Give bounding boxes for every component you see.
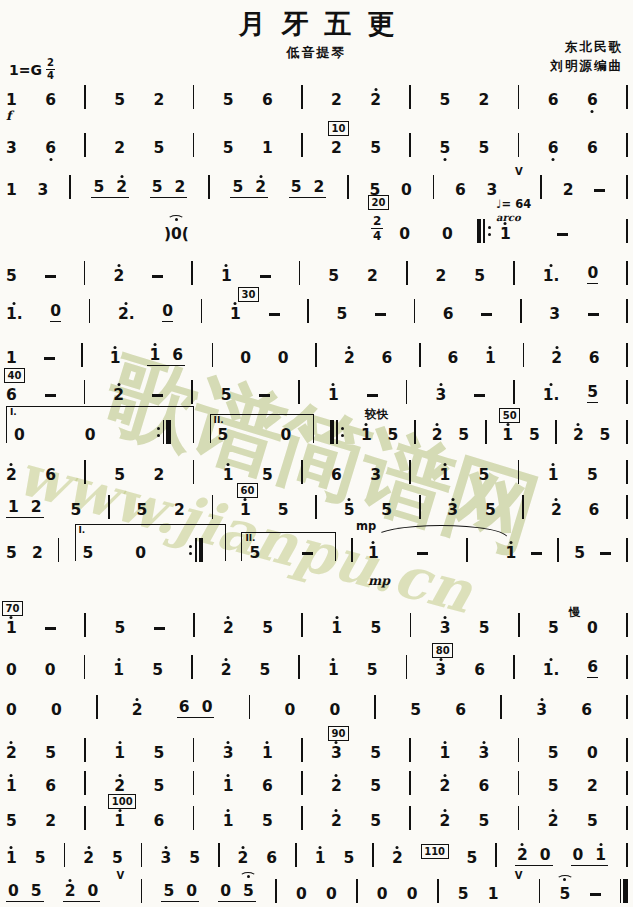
- note: 0: [329, 703, 340, 719]
- barline: [301, 460, 303, 484]
- note-glyph: 2.: [118, 307, 135, 323]
- barline: [141, 843, 143, 867]
- note-glyph: 1: [223, 814, 234, 830]
- note: 2: [114, 141, 125, 157]
- barline: [108, 495, 110, 519]
- bthin: [193, 738, 195, 762]
- note-glyph: 6: [179, 700, 190, 716]
- meter-numerator: 2: [46, 58, 55, 70]
- dash-note: [531, 552, 542, 555]
- note: 5: [249, 546, 260, 562]
- octave-dot-high-icon: [227, 463, 230, 466]
- note-glyph: 5: [458, 887, 469, 903]
- note-glyph: 1: [439, 468, 450, 484]
- barline: [477, 219, 492, 243]
- barline: [193, 460, 195, 484]
- note-glyph: 5: [115, 621, 126, 637]
- note: 2: [432, 428, 443, 444]
- note-glyph: 5: [249, 546, 260, 562]
- annotation-text: 慢: [569, 606, 581, 620]
- bthin: [193, 460, 195, 484]
- barline: [298, 655, 300, 679]
- barline: [414, 420, 416, 444]
- note: 1: [328, 388, 339, 404]
- octave-dot-high-icon: [550, 383, 553, 386]
- time-signature: 2420: [371, 215, 383, 242]
- note-glyph: 0: [240, 351, 251, 367]
- note-glyph: 5: [243, 884, 254, 900]
- note-glyph: 2: [6, 468, 17, 484]
- bthin: [193, 133, 195, 157]
- bthin: [626, 538, 628, 562]
- note: 6: [479, 779, 490, 795]
- octave-dot-high-icon: [443, 774, 446, 777]
- note-glyph: 1.: [543, 388, 560, 404]
- barline: [513, 261, 515, 285]
- note-glyph: 5: [328, 269, 339, 285]
- note-glyph: 2: [132, 703, 143, 719]
- note-glyph: 1: [6, 183, 17, 199]
- note: 0: [50, 304, 61, 323]
- note-glyph: 5: [388, 428, 399, 444]
- measure-number-box: 90: [328, 726, 349, 741]
- note: 6: [474, 663, 485, 679]
- note: 1.: [543, 663, 560, 679]
- barline: [307, 299, 309, 323]
- barline: [520, 299, 522, 323]
- note: 5: [370, 779, 381, 795]
- bdots: [488, 219, 491, 243]
- fermata-icon: [168, 215, 185, 225]
- note: 1: [6, 779, 17, 795]
- barline: [295, 843, 297, 867]
- barline: [301, 738, 303, 762]
- note-glyph: 5: [223, 93, 234, 109]
- note-glyph: 2: [551, 503, 562, 519]
- bthin: [347, 175, 349, 199]
- note: 0: [280, 428, 291, 444]
- bdot: [157, 427, 160, 430]
- note-glyph: 1: [368, 546, 379, 562]
- bthin: [518, 85, 520, 109]
- bthin: [356, 879, 358, 903]
- barline: [374, 695, 376, 719]
- bthin: [409, 738, 411, 762]
- note: 5: [93, 180, 104, 196]
- note-glyph: 2: [113, 269, 124, 285]
- note-glyph: 1: [110, 351, 121, 367]
- note: 5: [114, 93, 125, 109]
- barline: [191, 261, 193, 285]
- note-glyph: 6: [589, 351, 600, 367]
- note-glyph: 0: [51, 703, 62, 719]
- barline: [406, 380, 408, 404]
- barline: [301, 613, 303, 637]
- note: 2: [174, 503, 185, 519]
- music-line-2: 36255121055566: [6, 130, 628, 156]
- bthin: [626, 843, 628, 867]
- note: 1mpmp: [368, 546, 379, 562]
- note-glyph: 2: [6, 746, 17, 762]
- note: 1: [439, 468, 450, 484]
- dash-note: [152, 275, 163, 278]
- bthin: [249, 695, 251, 719]
- dash-note: [45, 627, 56, 630]
- note-glyph: 5: [223, 141, 234, 157]
- music-line-16: 25153139051350: [6, 735, 628, 761]
- note: 2: [331, 93, 342, 109]
- note-glyph: 6: [455, 703, 466, 719]
- note: 5: [291, 180, 302, 196]
- note-glyph: 2: [432, 428, 443, 444]
- meter-denominator: 4: [47, 70, 54, 81]
- note-glyph: 1: [488, 887, 499, 903]
- note: 5: [370, 814, 381, 830]
- barline: [409, 738, 411, 762]
- note: 1: [548, 468, 559, 484]
- bthin: [513, 655, 515, 679]
- credits: 东北民歌 刘明源编曲: [551, 38, 624, 76]
- note-glyph: 6: [548, 93, 559, 109]
- octave-dot-high-icon: [444, 616, 447, 619]
- note: 2: [436, 269, 447, 285]
- music-line-1: 1f65256225266: [6, 82, 628, 108]
- barline: [249, 695, 251, 719]
- note-glyph: 0: [162, 304, 173, 320]
- note: 5: [367, 663, 378, 679]
- music-line-6: 1.02.0130563: [6, 296, 628, 322]
- note-glyph: 2: [479, 93, 490, 109]
- volta-1-bracket: I.50: [75, 524, 227, 561]
- note-glyph: 2: [563, 183, 574, 199]
- barline: [347, 175, 349, 199]
- note-glyph: 1: [6, 351, 17, 367]
- octave-dot-high-icon: [227, 616, 230, 619]
- note-glyph: 3: [479, 746, 490, 762]
- bthin: [299, 261, 301, 285]
- note-glyph: 1: [315, 851, 326, 867]
- note: 5: [45, 746, 56, 762]
- note: )0(: [164, 227, 189, 243]
- bthin: [414, 299, 416, 323]
- note: 5: [344, 851, 355, 867]
- barline: [485, 420, 487, 444]
- volta-2-bracket: II.5: [241, 532, 336, 562]
- note: 3: [536, 703, 547, 719]
- octave-dot-high-icon: [555, 498, 558, 501]
- barline: [626, 460, 628, 484]
- bthin: [301, 460, 303, 484]
- barline: [626, 538, 628, 562]
- bthin: [406, 655, 408, 679]
- music-line-17: 162516252652: [6, 768, 628, 794]
- note: 2: [367, 269, 378, 285]
- note-glyph: 2: [331, 779, 342, 795]
- note: 0: [296, 887, 307, 903]
- note-glyph: 5: [221, 388, 232, 404]
- measure-number-box: 30: [238, 287, 259, 302]
- note: 6: [45, 779, 56, 795]
- note: 2: [6, 468, 17, 484]
- note-glyph: 5: [458, 428, 469, 444]
- octave-dot-low-icon: [552, 158, 555, 161]
- note: 2: [132, 703, 143, 719]
- note: 2: [548, 814, 559, 830]
- note-glyph: 2: [314, 180, 325, 196]
- note: 0: [51, 703, 62, 719]
- note-glyph: 3: [549, 307, 560, 323]
- measure-number-box: 70: [2, 601, 23, 616]
- barline: [351, 538, 353, 562]
- note-glyph: 5: [45, 746, 56, 762]
- barline: [156, 420, 171, 444]
- barline: [626, 420, 628, 444]
- barline: [69, 175, 71, 199]
- note-glyph: 6: [548, 141, 559, 157]
- note-glyph: 0: [329, 703, 340, 719]
- octave-dot-high-icon: [114, 346, 117, 349]
- bthick: [166, 420, 171, 444]
- barline: [330, 420, 345, 444]
- note-glyph: 0: [14, 428, 25, 444]
- bthin: [351, 538, 353, 562]
- octave-dot-high-icon: [439, 383, 442, 386]
- note-glyph: 5: [587, 385, 598, 401]
- note-glyph: 0: [8, 884, 19, 900]
- bthick: [623, 879, 628, 903]
- note: 1: [315, 851, 326, 867]
- note: 2: [175, 180, 186, 196]
- note-glyph: 3: [6, 141, 17, 157]
- note: 2: [392, 851, 403, 867]
- note: 2: [587, 779, 598, 795]
- note: 0: [8, 884, 19, 900]
- note: 2: [479, 93, 490, 109]
- barline: [84, 380, 86, 404]
- bthin: [301, 806, 303, 830]
- note: 0: [135, 546, 146, 562]
- note: 3: [486, 183, 497, 199]
- note: 0: [587, 746, 598, 762]
- note: 0: [399, 227, 410, 243]
- note-glyph: 6: [45, 779, 56, 795]
- bow-mark-icon: V: [515, 870, 523, 881]
- note-glyph: 0: [407, 887, 418, 903]
- note: 5: [262, 814, 273, 830]
- volta-label: I.: [79, 526, 86, 535]
- barline: [89, 299, 91, 323]
- note-glyph: 2: [548, 814, 559, 830]
- bthin: [620, 879, 622, 903]
- bthin: [495, 843, 497, 867]
- barline: [433, 175, 435, 199]
- note-glyph: 2: [45, 814, 56, 830]
- bthin: [96, 695, 98, 719]
- volta-label: II.: [214, 416, 224, 425]
- note-glyph: 3: [223, 746, 234, 762]
- octave-dot-high-icon: [164, 846, 167, 849]
- note-glyph: 6: [262, 779, 273, 795]
- bthin: [374, 695, 376, 719]
- music-line-19: 1525352615211052001: [6, 840, 628, 866]
- note-glyph: 1: [502, 428, 513, 444]
- note-glyph: 2: [174, 503, 185, 519]
- barline: [212, 495, 214, 519]
- bthin: [518, 806, 520, 830]
- barline: [208, 175, 210, 199]
- bthin: [626, 343, 628, 367]
- note: 5: [6, 814, 17, 830]
- octave-dot-high-icon: [153, 343, 156, 346]
- octave-dot-high-icon: [489, 346, 492, 349]
- barline: [96, 695, 98, 719]
- barline: [626, 261, 628, 285]
- bthin: [466, 538, 468, 562]
- note: 5: [112, 851, 123, 867]
- octave-dot-high-icon: [332, 658, 335, 661]
- barline: [299, 261, 301, 285]
- barline: [419, 343, 421, 367]
- octave-dot-high-icon: [335, 616, 338, 619]
- note: 1100: [114, 814, 125, 830]
- barline: [193, 613, 195, 637]
- octave-dot-high-icon: [540, 698, 543, 701]
- note: 5: [262, 621, 273, 637]
- bthin: [539, 879, 541, 903]
- note: 3: [6, 141, 17, 157]
- bthin: [518, 460, 520, 484]
- bthin: [406, 261, 408, 285]
- bdots: [341, 420, 344, 444]
- octave-dot-high-icon: [506, 423, 509, 426]
- note-glyph: 5: [262, 621, 273, 637]
- note-glyph: 1: [485, 351, 496, 367]
- barline: [84, 85, 86, 109]
- note-glyph: 5: [152, 663, 163, 679]
- bthin: [301, 771, 303, 795]
- octave-dot-high-icon: [227, 774, 230, 777]
- note: 130: [230, 307, 241, 323]
- note: 1.: [543, 388, 560, 404]
- bthin: [212, 343, 214, 367]
- barline: [626, 806, 628, 830]
- bthin: [84, 613, 86, 637]
- note: 6: [443, 307, 454, 323]
- note-glyph: 1.: [6, 307, 23, 323]
- note: 1: [262, 746, 273, 762]
- barline: [84, 655, 86, 679]
- music-line-3: 13525252525063V2: [6, 172, 628, 198]
- bthin: [406, 380, 408, 404]
- bthin: [626, 261, 628, 285]
- note-glyph: 0: [88, 884, 99, 900]
- note-glyph: 1: [361, 428, 372, 444]
- octave-dot-high-icon: [549, 658, 552, 661]
- note-glyph: 0: [202, 700, 213, 716]
- note-glyph: 3: [447, 503, 458, 519]
- note: 1: [223, 814, 234, 830]
- bthin: [485, 420, 487, 444]
- note-glyph: 1: [114, 746, 125, 762]
- measure-number-box: 10: [328, 121, 349, 136]
- barline: [141, 879, 143, 903]
- note-glyph: 6: [6, 388, 17, 404]
- note-glyph: 5: [529, 428, 540, 444]
- barline: [626, 495, 628, 519]
- octave-dot-high-icon: [521, 843, 524, 846]
- note: 5: [223, 93, 234, 109]
- bthin: [626, 420, 628, 444]
- note-glyph: 6: [262, 93, 273, 109]
- note-glyph: 5: [6, 814, 17, 830]
- bthin: [483, 219, 485, 243]
- note: 5: [600, 428, 611, 444]
- note: 6: [587, 93, 598, 109]
- note: 5: [262, 468, 273, 484]
- note-glyph: 5: [370, 746, 381, 762]
- octave-dot-low-icon: [591, 110, 594, 113]
- note: 6: [45, 468, 56, 484]
- note-glyph: 1: [328, 388, 339, 404]
- note-glyph: 5: [344, 503, 355, 519]
- note: 2: [221, 663, 232, 679]
- octave-dot-high-icon: [117, 264, 120, 267]
- beam-group: 12: [6, 500, 44, 519]
- note: 5: [370, 141, 381, 157]
- note-glyph: 0: [50, 304, 61, 320]
- bthin: [409, 460, 411, 484]
- octave-dot-high-icon: [348, 498, 351, 501]
- note-glyph: 1: [6, 93, 17, 109]
- note: 5: [529, 428, 540, 444]
- note: 5: [388, 428, 399, 444]
- bow-mark-icon: V: [515, 166, 523, 177]
- barline: [626, 85, 628, 109]
- note-glyph: 5: [467, 851, 478, 867]
- note-glyph: 2: [223, 621, 234, 637]
- annotation-line: 慢: [569, 606, 581, 620]
- bdot: [488, 226, 491, 229]
- barline: [193, 85, 195, 109]
- note-glyph: 1: [328, 663, 339, 679]
- bthin: [193, 771, 195, 795]
- note: 3: [38, 183, 49, 199]
- bthin: [372, 843, 374, 867]
- octave-dot-high-icon: [332, 383, 335, 386]
- octave-dot-high-icon: [335, 774, 338, 777]
- octave-dot-high-icon: [443, 741, 446, 744]
- note: 6: [172, 348, 183, 364]
- note: 5: [163, 884, 174, 900]
- bthin: [69, 175, 71, 199]
- note: 6: [45, 141, 56, 157]
- bdot: [189, 545, 192, 548]
- note-glyph: 0: [220, 884, 231, 900]
- bdot: [341, 427, 344, 430]
- octave-dot-high-icon: [10, 774, 13, 777]
- note-glyph: 2: [370, 93, 381, 109]
- note-glyph: 2: [517, 848, 528, 864]
- note-glyph: 0: [442, 227, 453, 243]
- note: 5: [154, 779, 165, 795]
- bthin: [626, 219, 628, 243]
- music-line-12: 52I.50II.51mpmp15: [6, 535, 628, 561]
- note: 5: [328, 269, 339, 285]
- note: 5: [218, 428, 229, 444]
- note-glyph: 5: [232, 180, 243, 196]
- bthin: [409, 771, 411, 795]
- octave-dot-high-icon: [374, 88, 377, 91]
